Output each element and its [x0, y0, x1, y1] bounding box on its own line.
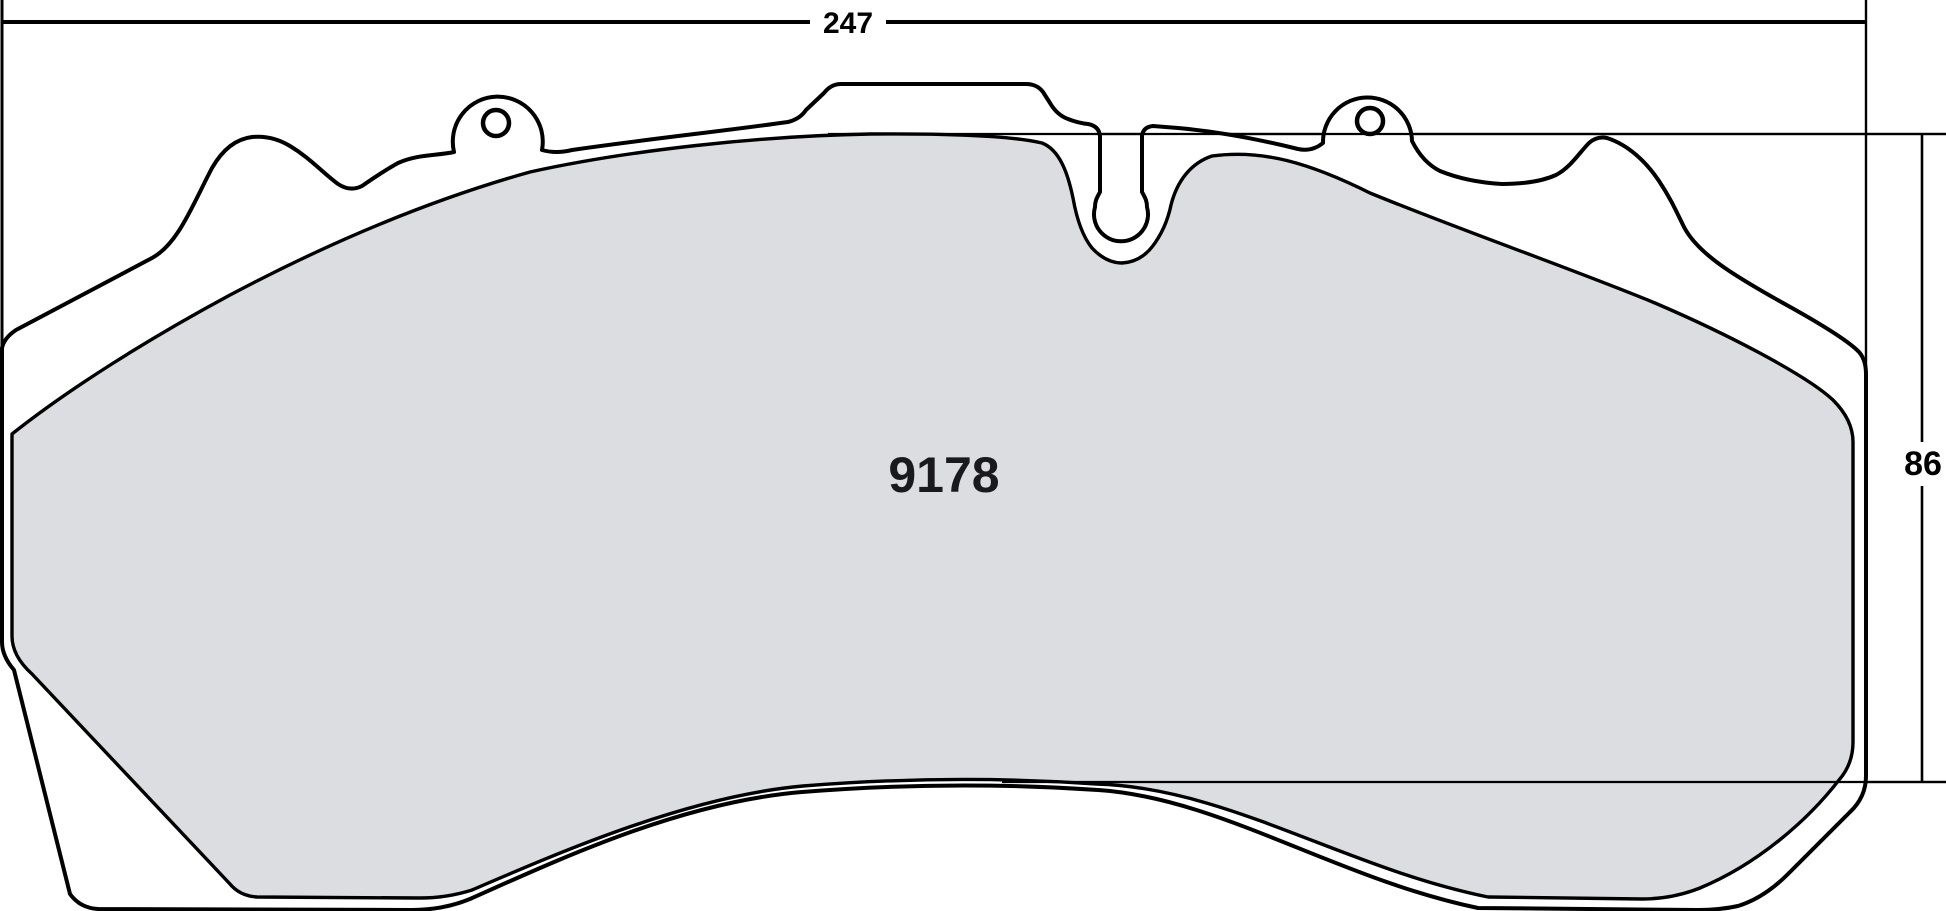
drawing-canvas: 247 86 9178 — [0, 0, 1946, 911]
brake-pad-drawing: 247 86 9178 — [0, 0, 1946, 911]
right-rivet-hole — [1357, 108, 1383, 134]
left-rivet-hole — [483, 110, 509, 136]
height-dimension-label: 86 — [1904, 445, 1942, 483]
part-number-label: 9178 — [888, 447, 999, 503]
width-dimension-label: 247 — [823, 7, 873, 40]
